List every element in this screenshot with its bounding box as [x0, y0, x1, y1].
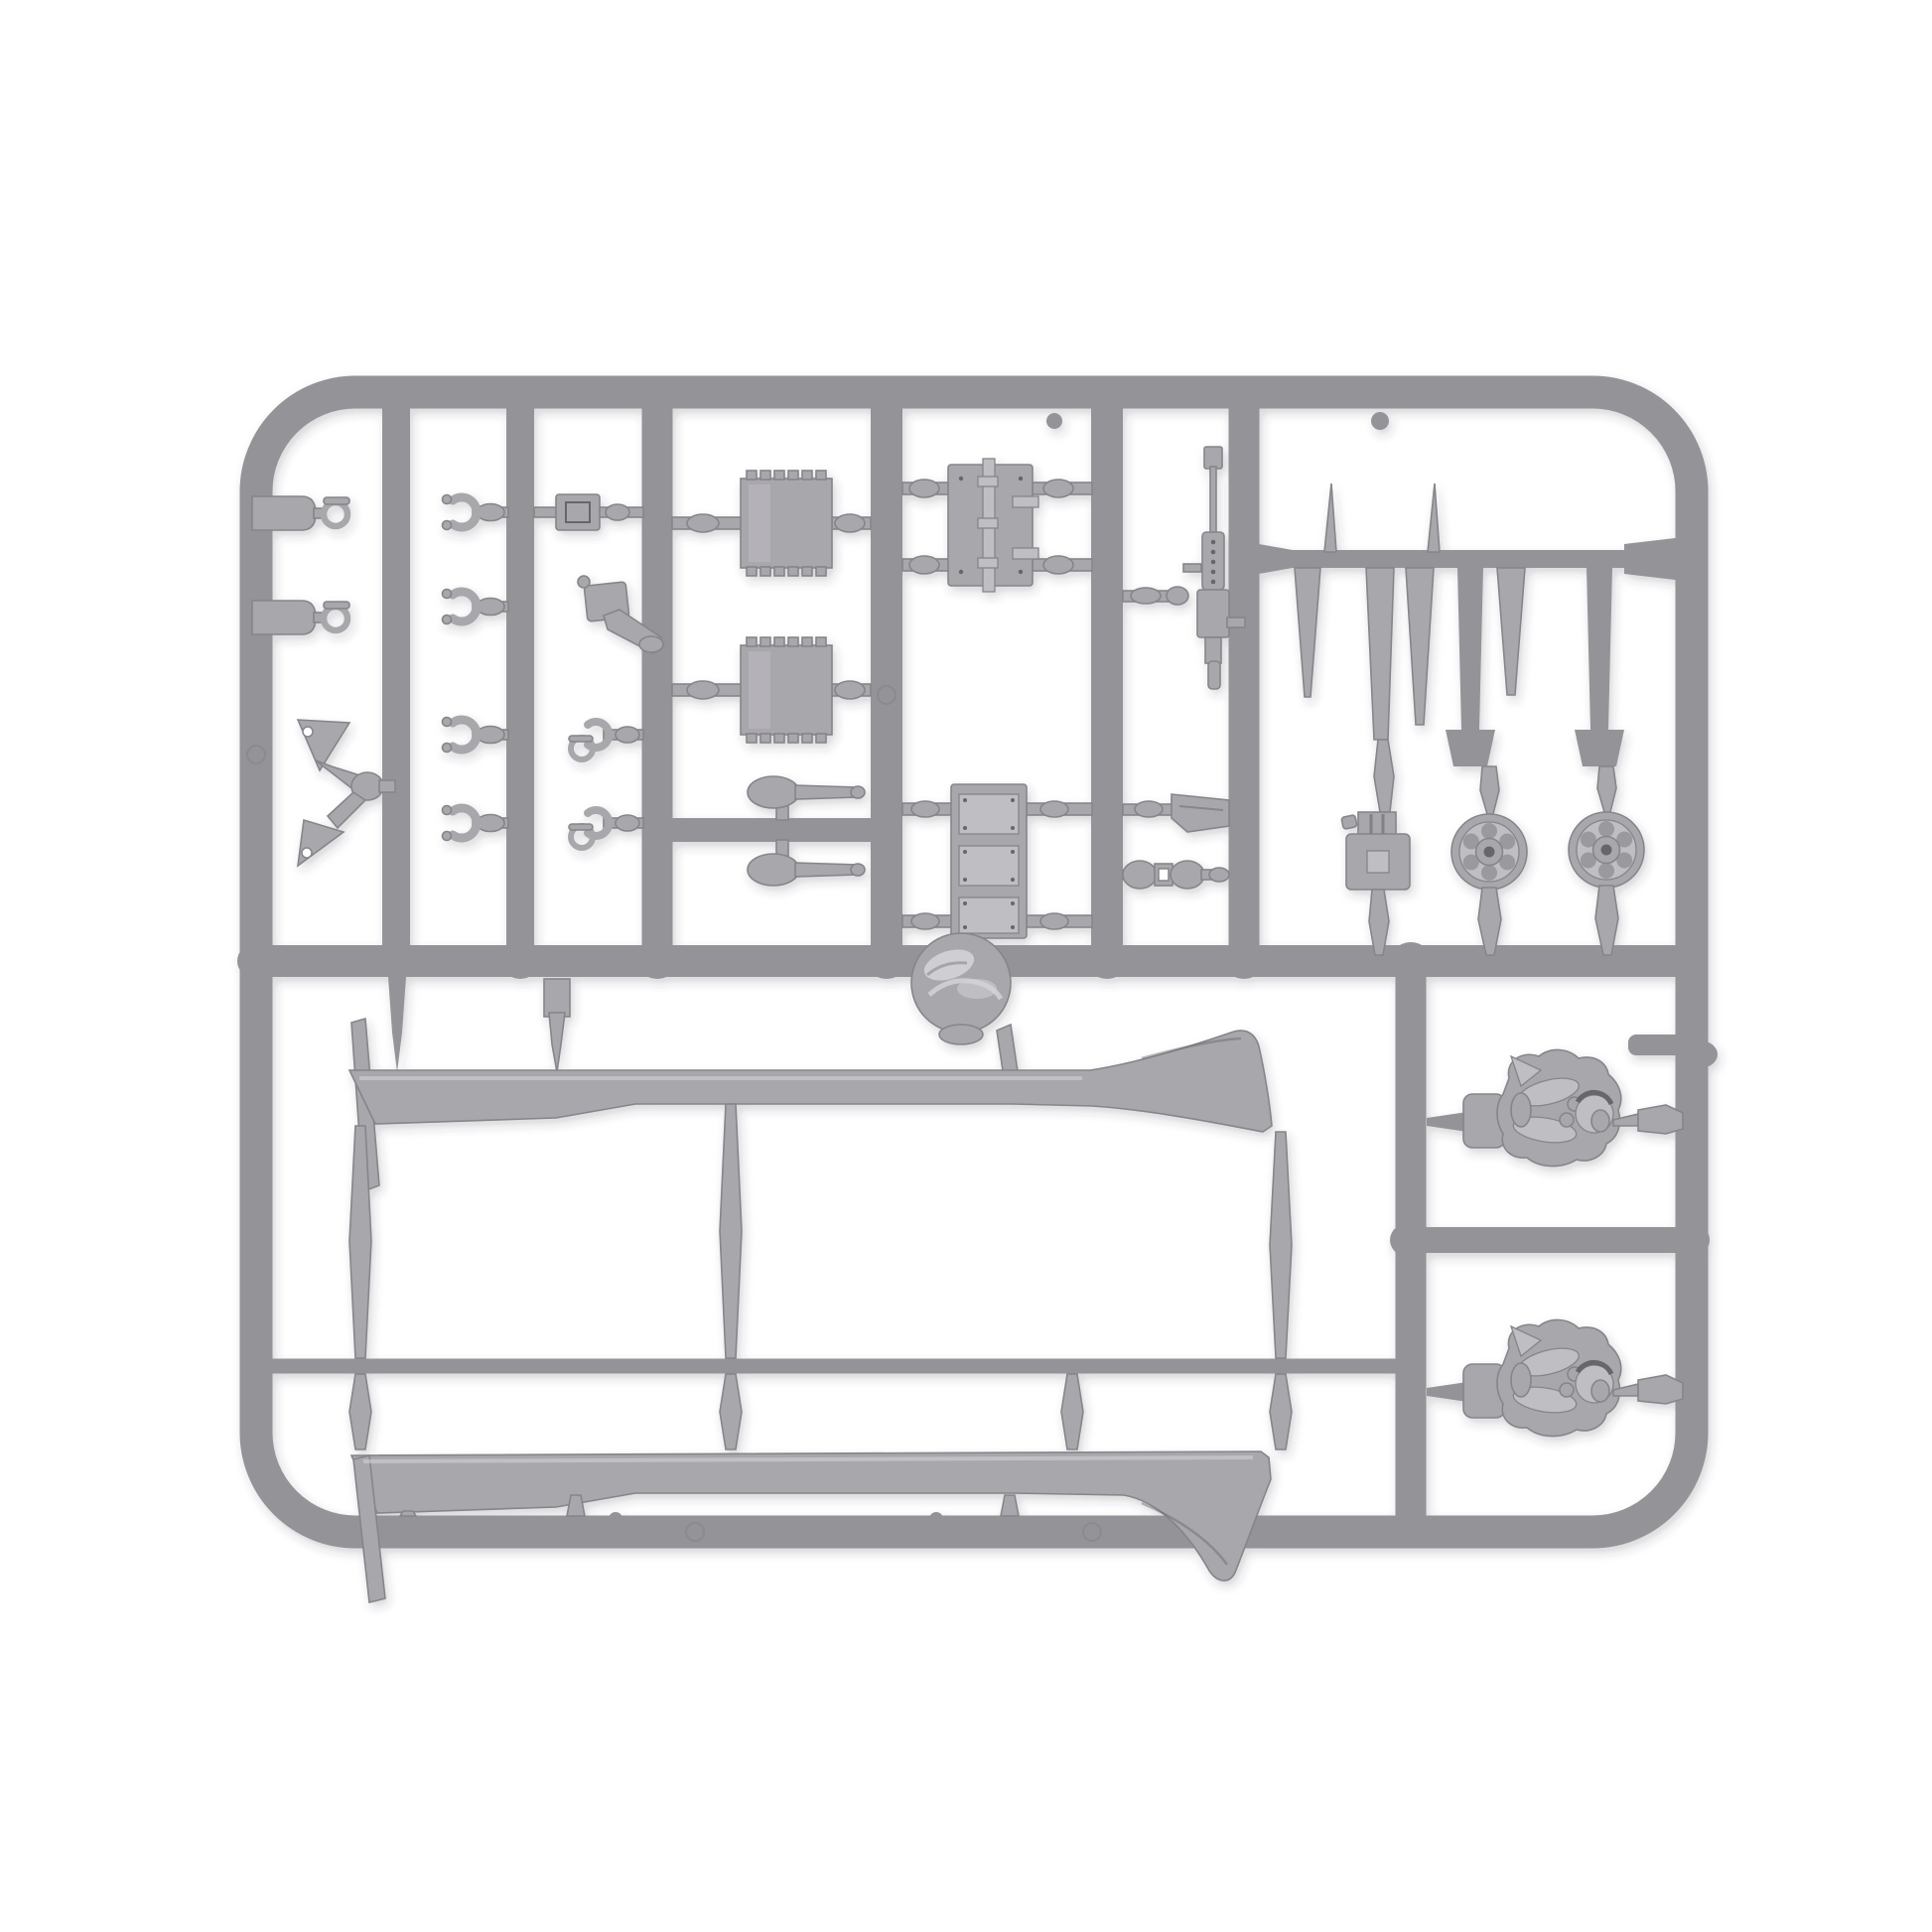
ribbed-plate-2: [672, 637, 871, 743]
jerry-can: [1341, 740, 1410, 955]
mortar-rounds: [672, 776, 871, 886]
spindle-gates-row-2: [349, 1374, 1292, 1449]
fin-blade-4: [1497, 568, 1525, 695]
spindle-gates-row-1: [349, 1104, 1292, 1358]
ski-body: [349, 1031, 1272, 1132]
sprue-photo: Photograph of a light grey polystyrene m…: [0, 0, 1932, 1932]
tow-bracket: [298, 720, 395, 866]
twin-coupling: [1123, 861, 1229, 889]
clevis-fork-4: [443, 806, 509, 841]
fin-spike-1: [1324, 483, 1336, 552]
sprue: [237, 392, 1718, 1602]
fin-blade-3: [1406, 568, 1434, 725]
fin-blade-1: [1295, 568, 1320, 697]
fin-stem-2: [1587, 568, 1612, 730]
machine-gun: [1123, 447, 1245, 689]
coupling-box: [534, 494, 643, 530]
fork-d-ring-2: [569, 810, 643, 848]
hinged-hatch: [902, 459, 1092, 592]
sled-runner-upper: [349, 977, 1272, 1191]
clevis-fork-1: [443, 495, 509, 530]
can-boss: [1367, 851, 1389, 873]
mg-stock: [1208, 661, 1220, 689]
clevis-fork-2: [443, 590, 509, 624]
crew-figure-2: [1427, 1319, 1683, 1436]
can-upper-stem: [1374, 740, 1394, 812]
clevis-fork-3: [443, 718, 509, 753]
road-wheel-2: [1569, 766, 1644, 955]
mg-muzzle: [1204, 447, 1222, 469]
fin-spike-2: [1428, 483, 1440, 552]
mg-barrel: [1210, 467, 1216, 534]
tow-shackle-2: [252, 601, 349, 634]
can-spout: [1341, 815, 1357, 830]
triple-hatch-panel: [902, 784, 1092, 938]
tow-shackle-1: [252, 496, 349, 530]
photo-stage: Photograph of a light grey polystyrene m…: [0, 0, 1932, 1932]
mg-grip: [1205, 637, 1221, 663]
ribbed-plate-1: [672, 471, 871, 576]
mg-receiver: [1197, 590, 1229, 637]
fork-d-ring-1: [569, 722, 643, 759]
rail-stub-above-ski: [388, 977, 406, 1072]
domed-cap: [911, 933, 1019, 1084]
fin-blade-2: [1366, 568, 1394, 740]
crew-figure-1: [1427, 1049, 1683, 1166]
fin-stem-1: [1457, 568, 1483, 730]
mg-handle: [1183, 564, 1201, 572]
entrenching-blade: [1123, 794, 1229, 832]
road-wheel-1: [1451, 766, 1527, 955]
tail-fin-set: [1259, 483, 1692, 766]
